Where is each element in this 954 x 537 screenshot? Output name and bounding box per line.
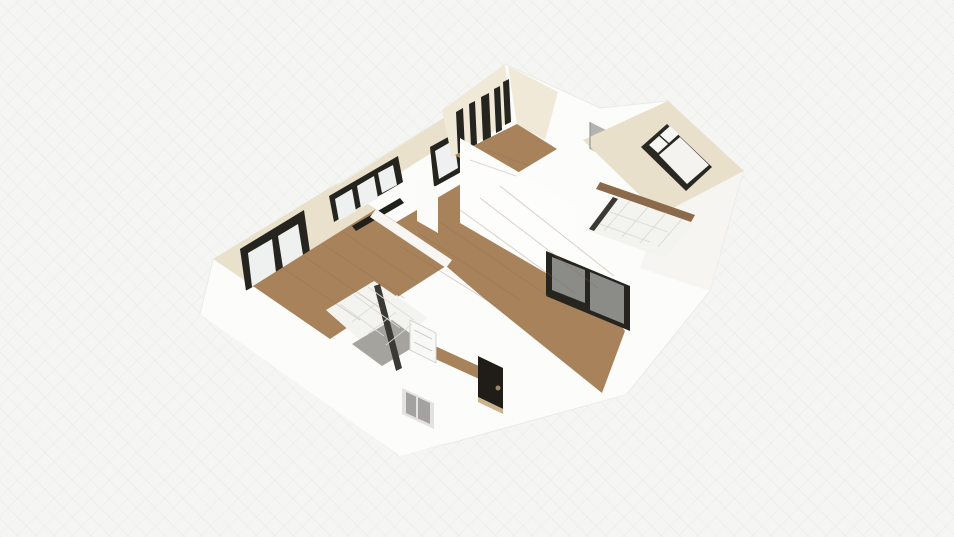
floorplan-3d-viewport[interactable]: [0, 0, 954, 537]
floorplan-canvas: [0, 0, 954, 537]
entry-door-knob: [496, 386, 501, 391]
